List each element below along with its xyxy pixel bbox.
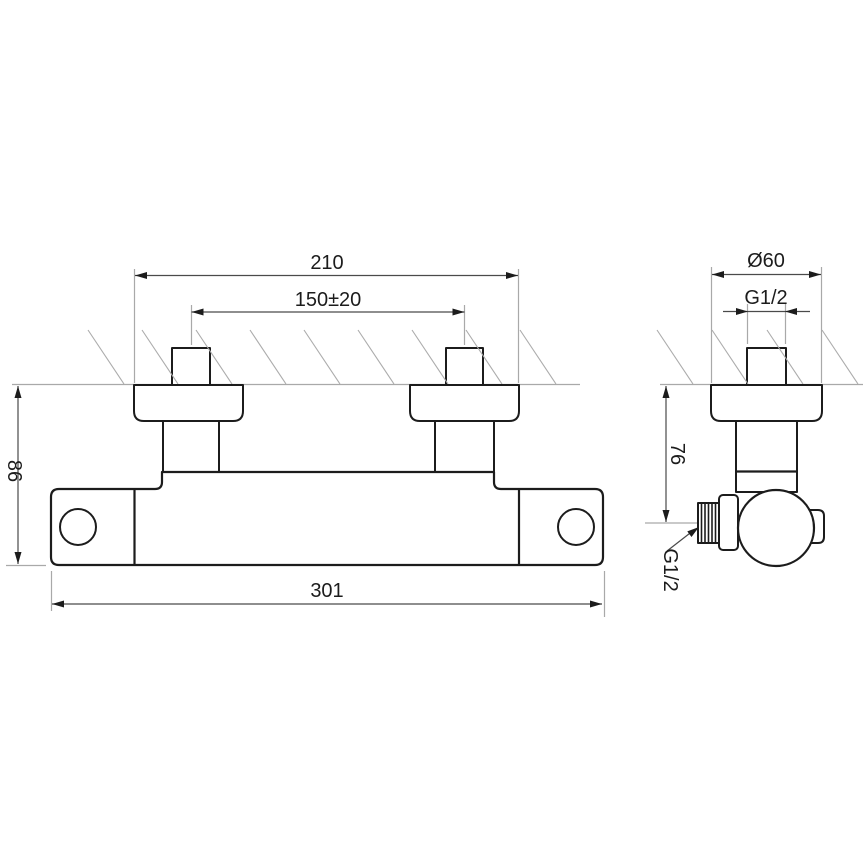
technical-drawing-page: 210 150±20 86 301 Ø60 G1/2 76 G1/2 <box>0 0 868 868</box>
inlet-stub-right <box>446 348 483 385</box>
shower-mixer-drawing: 210 150±20 86 301 Ø60 G1/2 76 G1/2 <box>0 0 868 868</box>
connector-right <box>435 421 494 472</box>
dim-76-label: 76 <box>666 443 688 465</box>
neck-side <box>736 421 797 492</box>
outlet-block <box>719 495 738 550</box>
knob-side <box>738 490 814 566</box>
dim-301-label: 301 <box>310 580 343 602</box>
escutcheon-side <box>711 385 822 421</box>
handle-left <box>60 509 96 545</box>
connector-left <box>163 421 219 472</box>
front-view <box>51 330 603 565</box>
dim-g12-inlet-label: G1/2 <box>744 287 787 309</box>
escutcheon-left <box>134 385 243 421</box>
wall-hatch-front <box>88 330 556 384</box>
dim-86-label: 86 <box>3 460 25 482</box>
dim-210-label: 210 <box>310 252 343 274</box>
escutcheon-right <box>410 385 519 421</box>
inlet-stub-side <box>747 348 786 385</box>
dim-d60-label: Ø60 <box>747 250 785 272</box>
inlet-stub-left <box>172 348 210 385</box>
dim-150-label: 150±20 <box>295 289 362 311</box>
dim-g12-outlet-label: G1/2 <box>659 548 681 591</box>
handle-right <box>558 509 594 545</box>
